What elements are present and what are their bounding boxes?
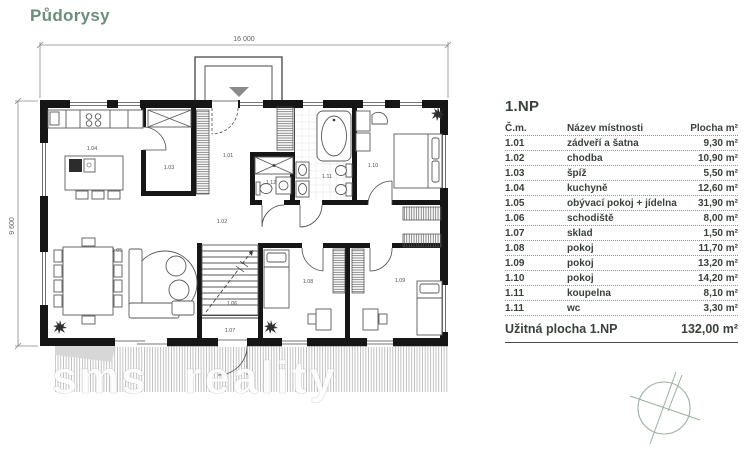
room-label: 1.04	[87, 146, 97, 152]
room-name: špíž	[567, 168, 704, 179]
room-number: 1.10	[505, 273, 567, 284]
sliding-terrace-door	[115, 337, 167, 347]
kitchen-counter	[48, 110, 143, 128]
sofa-set	[129, 249, 197, 318]
column-header-area: Plocha m²	[690, 123, 738, 134]
table-row: 1.01 zádveří a šatna 9,30 m²	[505, 136, 738, 151]
dimension-width-label: 16 000	[233, 36, 255, 43]
floor-title: 1.NP	[505, 98, 738, 115]
room-label: 1.07	[225, 328, 235, 334]
room-area: 12,60 m²	[698, 183, 738, 194]
room-area: 14,20 m²	[698, 273, 738, 284]
bar-stool	[76, 191, 88, 199]
room-label: 1.09	[395, 278, 405, 284]
bed	[394, 134, 442, 188]
table-row: 1.09 pokoj 13,20 m²	[505, 256, 738, 271]
bedroom-bottom-right-furniture	[363, 281, 442, 335]
room-name: wc	[567, 303, 704, 314]
desk-chair	[308, 314, 316, 324]
bed	[417, 281, 442, 335]
room-number: 1.08	[505, 243, 567, 254]
room-label: 1.02	[217, 219, 227, 225]
desk	[316, 309, 331, 330]
room-area: 3,30 m²	[704, 303, 738, 314]
dimension-height-label: 9 600	[9, 217, 16, 235]
shower	[255, 157, 293, 174]
room-label: 1.12	[266, 180, 276, 186]
bedroom-bottom-center-furniture	[264, 250, 331, 334]
bed	[264, 250, 289, 308]
room-area: 1,50 m²	[704, 228, 738, 239]
washing-machine	[276, 177, 291, 194]
room-area: 9,30 m²	[704, 138, 738, 149]
bathtub	[317, 111, 351, 161]
room-name: kuchyně	[567, 183, 698, 194]
desk	[363, 309, 378, 330]
dimension-left: 9 600	[9, 98, 38, 349]
room-area: 11,70 m²	[699, 243, 738, 254]
table-total-row: Užitná plocha 1.NP 132,00 m²	[505, 316, 738, 343]
room-label: 1.08	[303, 279, 313, 285]
entrance-marker-icon	[229, 87, 249, 97]
table-rows: 1.01 zádveří a šatna 9,30 m² 1.02 chodba…	[505, 136, 738, 316]
terrace-deck	[55, 346, 448, 392]
room-number: 1.01	[505, 138, 567, 149]
room-name: obývací pokoj + jídelna	[567, 198, 698, 209]
room-area: 13,20 m²	[698, 258, 738, 269]
room-area: 8,10 m²	[704, 288, 738, 299]
room-area: 31,90 m²	[698, 198, 738, 209]
room-number: 1.07	[505, 228, 567, 239]
table-row: 1.04 kuchyně 12,60 m²	[505, 181, 738, 196]
table-header: Č.m. Název místnosti Plocha m²	[505, 121, 738, 136]
room-name: koupelna	[567, 288, 704, 299]
bedroom-top-right-furniture	[356, 107, 445, 188]
desk-chair	[379, 314, 387, 324]
column-header-number: Č.m.	[505, 123, 567, 134]
room-name: chodba	[567, 153, 698, 164]
room-name: pokoj	[567, 273, 698, 284]
room-name: schodiště	[567, 213, 704, 224]
entrance-porch	[195, 57, 282, 100]
table-row: 1.06 schodiště 8,00 m²	[505, 211, 738, 226]
room-label: 1.03	[164, 165, 174, 171]
room-name: sklad	[567, 228, 704, 239]
room-number: 1.06	[505, 213, 567, 224]
front-door	[212, 99, 238, 134]
total-label: Užitná plocha 1.NP	[505, 322, 681, 336]
room-number: 1.02	[505, 153, 567, 164]
room-number: 1.11	[505, 303, 567, 314]
compass-icon	[630, 372, 700, 444]
bar-stool	[92, 191, 104, 199]
room-label: 1.11	[322, 174, 332, 180]
room-label: 1.05	[112, 248, 122, 254]
table-row: 1.11 wc 3,30 m²	[505, 301, 738, 316]
page-title: Půdorysy	[30, 6, 110, 26]
plant-icon	[53, 320, 67, 334]
column-header-name: Název místnosti	[567, 123, 690, 134]
room-name: zádveří a šatna	[567, 138, 704, 149]
room-label: 1.01	[223, 153, 233, 159]
room-label: 1.06	[227, 301, 237, 307]
room-number: 1.04	[505, 183, 567, 194]
room-area: 8,00 m²	[704, 213, 738, 224]
table-row: 1.11 koupelna 8,10 m²	[505, 286, 738, 301]
total-value: 132,00 m²	[681, 322, 738, 336]
bathroom-sinks	[296, 162, 309, 197]
room-name: pokoj	[567, 258, 698, 269]
table-row: 1.07 sklad 1,50 m²	[505, 226, 738, 241]
floorplan-page: 16 000 9 600	[0, 0, 753, 468]
room-label: 1.10	[368, 163, 378, 169]
pantry-shelf	[148, 110, 191, 127]
table-row: 1.08 pokoj 11,70 m²	[505, 241, 738, 256]
room-area: 5,50 m²	[704, 168, 738, 179]
room-table: 1.NP Č.m. Název místnosti Plocha m² 1.01…	[505, 98, 738, 343]
room-number: 1.11	[505, 288, 567, 299]
room-number: 1.03	[505, 168, 567, 179]
kitchen-island	[65, 156, 123, 199]
room-number: 1.05	[505, 198, 567, 209]
table-row: 1.03 špíž 5,50 m²	[505, 166, 738, 181]
room-number: 1.09	[505, 258, 567, 269]
bar-stool	[108, 191, 120, 199]
room-name: pokoj	[567, 243, 699, 254]
table-row: 1.05 obývací pokoj + jídelna 31,90 m²	[505, 196, 738, 211]
table-row: 1.10 pokoj 14,20 m²	[505, 271, 738, 286]
table-row: 1.02 chodba 10,90 m²	[505, 151, 738, 166]
room-area: 10,90 m²	[698, 153, 738, 164]
